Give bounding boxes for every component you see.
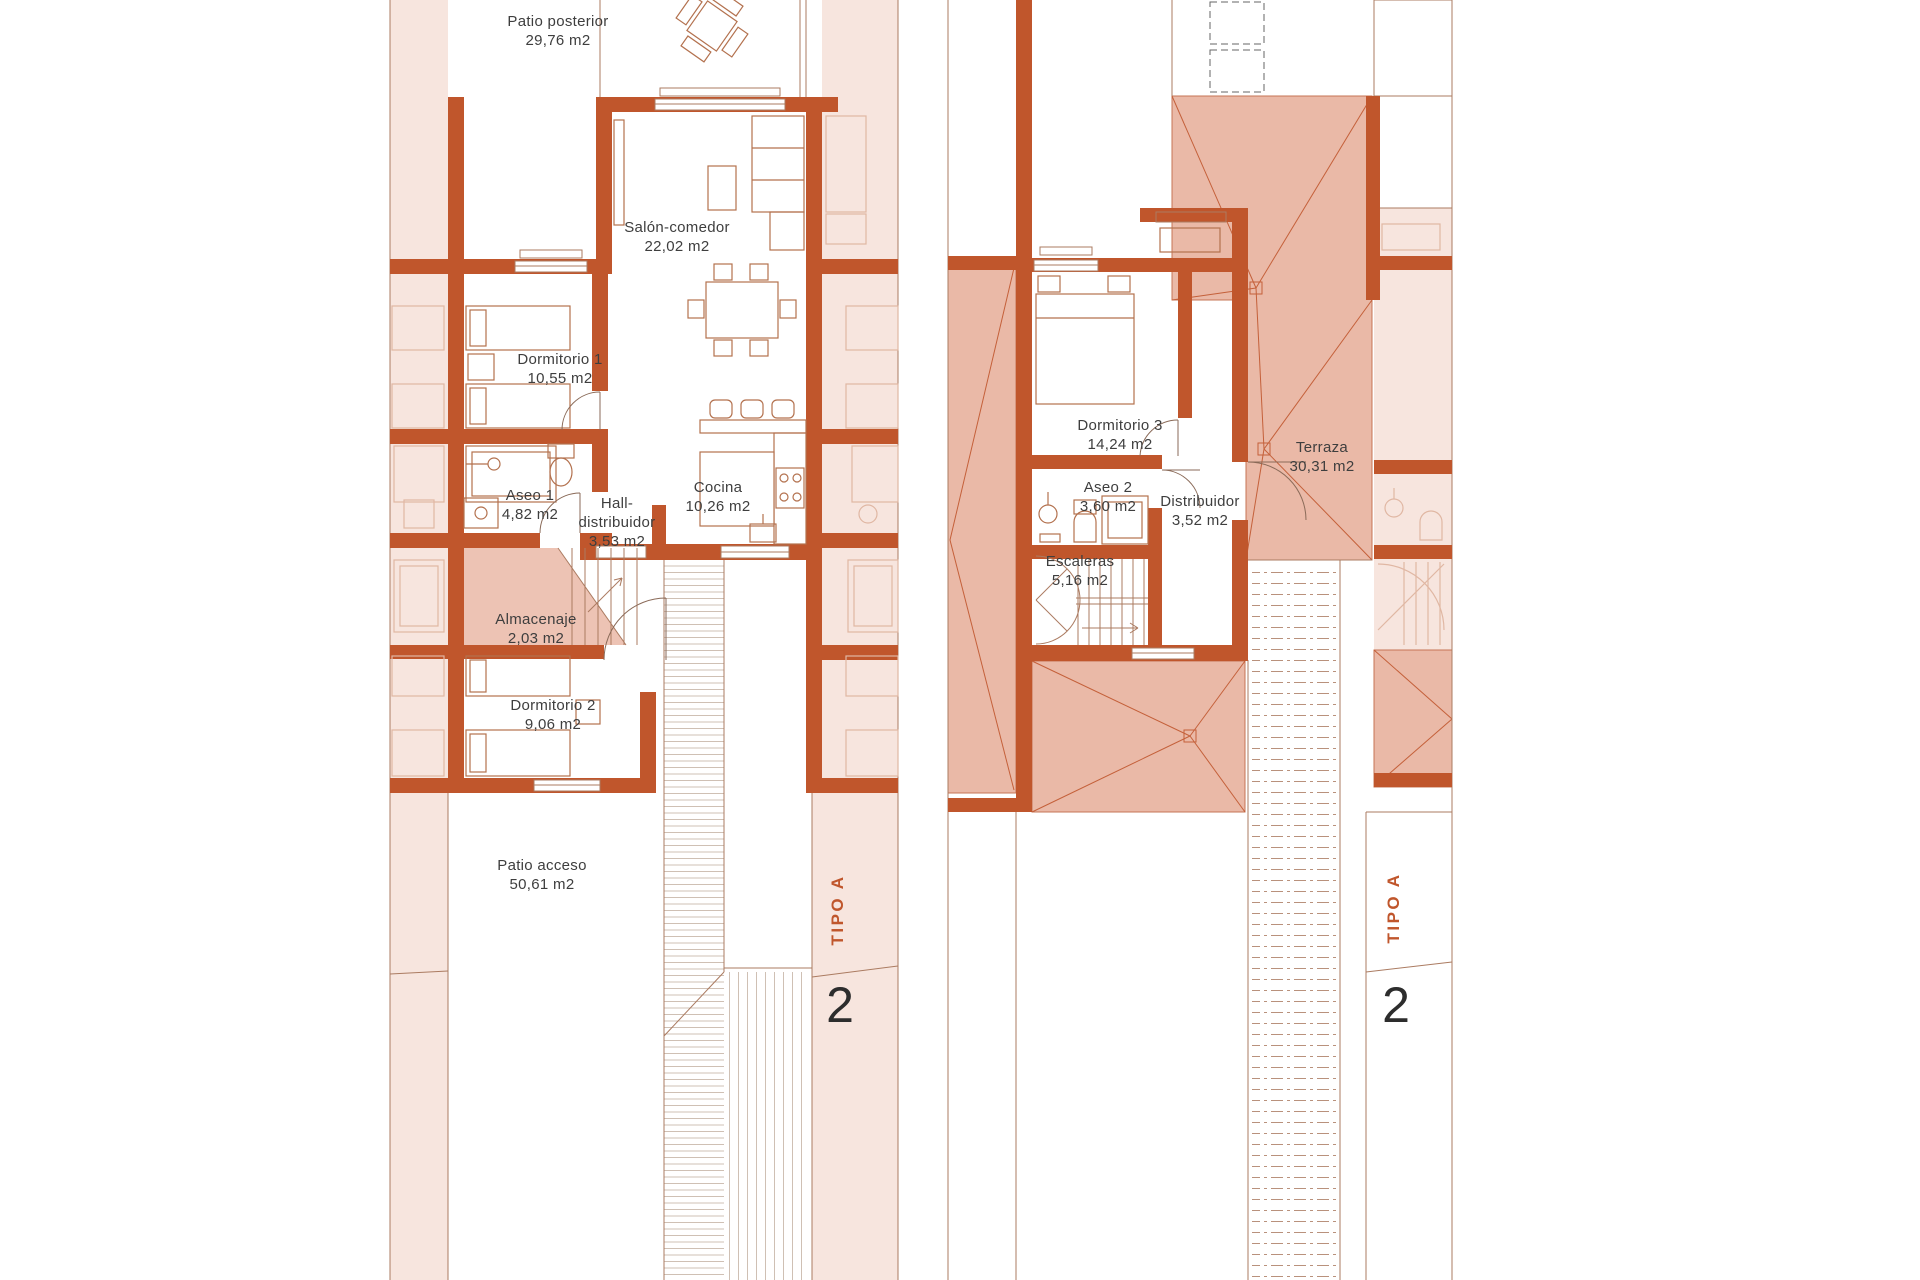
- sink: [750, 524, 776, 542]
- stove: [776, 468, 804, 508]
- type-strip-left: [812, 793, 898, 1280]
- bed: [466, 730, 570, 776]
- walkway-dashed: [1252, 564, 1338, 1280]
- type-label-right: TIPO A: [1384, 872, 1404, 943]
- coffee-table: [708, 166, 736, 210]
- room-label-patio-acceso: Patio acceso50,61 m2: [497, 856, 586, 894]
- unit-number-right: 2: [1382, 976, 1410, 1034]
- bed: [466, 656, 570, 696]
- room-label-dormitorio-1: Dormitorio 110,55 m2: [517, 350, 602, 388]
- room-label-dormitorio-3: Dormitorio 314,24 m2: [1077, 416, 1162, 454]
- room-label-aseo-2: Aseo 23,60 m2: [1080, 478, 1136, 516]
- room-label-escaleras: Escaleras5,16 m2: [1046, 552, 1115, 590]
- stool: [710, 400, 732, 418]
- neighbour-roof: [1374, 650, 1452, 787]
- porch-roof: [1032, 661, 1245, 812]
- room-label-patio-posterior: Patio posterior29,76 m2: [507, 12, 608, 50]
- bed: [466, 306, 570, 350]
- stool: [772, 400, 794, 418]
- type-label-left: TIPO A: [828, 874, 848, 945]
- floorplan-sheet: Patio posterior29,76 m2 Salón-comedor22,…: [0, 0, 1920, 1280]
- room-label-distribuidor: Distribuidor3,52 m2: [1160, 492, 1239, 530]
- nightstand: [468, 354, 494, 380]
- room-label-cocina: Cocina10,26 m2: [686, 478, 751, 516]
- plan-ground-floor: [390, 0, 898, 1280]
- room-label-terraza: Terraza30,31 m2: [1290, 438, 1355, 476]
- dining-table: [688, 264, 796, 356]
- tv-sideboard: [614, 120, 624, 225]
- plan-upper-floor: [948, 0, 1452, 1280]
- bed: [466, 384, 570, 428]
- room-label-hall-distribuidor: Hall-distribuidor3,53 m2: [565, 494, 669, 551]
- side-roof-strip: [948, 266, 1016, 793]
- walkway-hatch-horizontal: [664, 564, 724, 1280]
- double-bed: [1036, 294, 1134, 404]
- pergola-outline: [1210, 2, 1264, 92]
- breakfast-bar: [700, 420, 806, 433]
- walkway-hatch-vertical: [724, 972, 810, 1280]
- room-label-aseo-1: Aseo 14,82 m2: [502, 486, 558, 524]
- floorplan-drawing: [0, 0, 1920, 1280]
- washbasin: [1039, 505, 1057, 523]
- kitchen-furniture: [700, 400, 806, 544]
- sofa: [752, 116, 804, 250]
- room-label-almacenaje: Almacenaje2,03 m2: [495, 610, 576, 648]
- patio-table-set: [665, 0, 760, 73]
- room-label-salon-comedor: Salón-comedor22,02 m2: [624, 218, 730, 256]
- room-label-dormitorio-2: Dormitorio 29,06 m2: [510, 696, 595, 734]
- stool: [741, 400, 763, 418]
- unit-number-left: 2: [826, 976, 854, 1034]
